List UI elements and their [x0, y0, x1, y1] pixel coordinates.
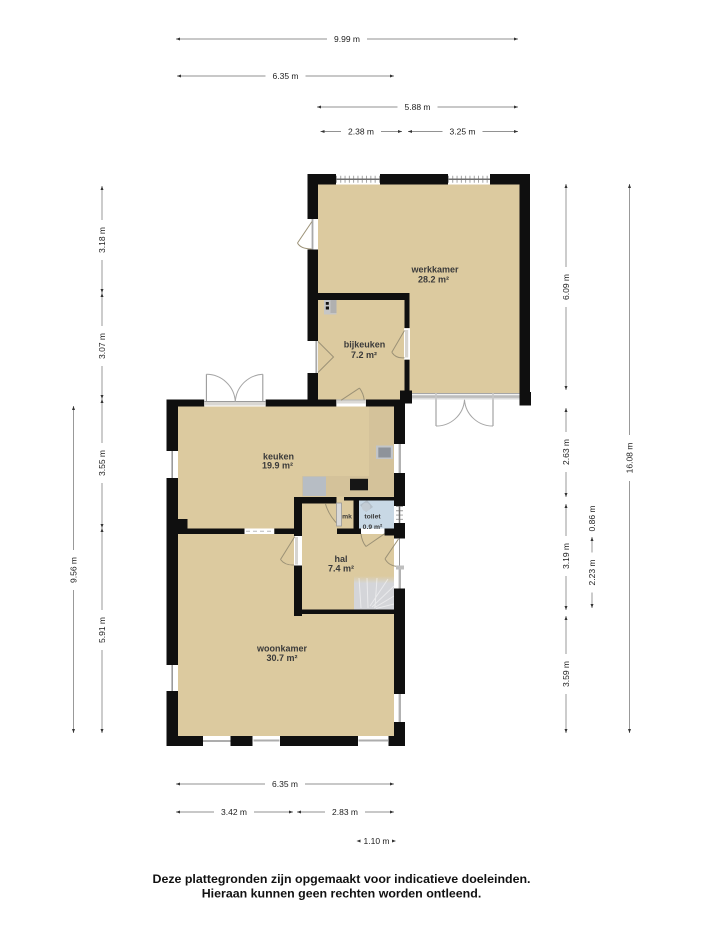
- svg-text:werkkamer: werkkamer: [410, 265, 459, 275]
- svg-text:mk: mk: [342, 514, 352, 521]
- svg-text:1.10 m: 1.10 m: [364, 836, 390, 846]
- svg-text:bijkeuken: bijkeuken: [344, 340, 386, 350]
- svg-text:2.63 m: 2.63 m: [561, 439, 571, 465]
- svg-text:7.2 m²: 7.2 m²: [351, 350, 377, 360]
- svg-text:Hieraan kunnen geen rechten wo: Hieraan kunnen geen rechten worden ontle…: [202, 887, 482, 901]
- svg-text:hal: hal: [334, 554, 347, 564]
- svg-text:2.23 m: 2.23 m: [587, 560, 597, 586]
- svg-text:toilet: toilet: [364, 514, 381, 521]
- svg-text:7.4 m²: 7.4 m²: [328, 564, 354, 574]
- svg-text:2.83 m: 2.83 m: [332, 807, 358, 817]
- svg-text:28.2 m²: 28.2 m²: [418, 275, 449, 285]
- svg-text:3.07 m: 3.07 m: [97, 333, 107, 359]
- svg-text:3.55 m: 3.55 m: [97, 450, 107, 476]
- svg-text:5.88 m: 5.88 m: [405, 102, 431, 112]
- svg-text:3.59 m: 3.59 m: [561, 661, 571, 687]
- svg-text:0.9 m²: 0.9 m²: [363, 524, 383, 531]
- svg-text:9.99 m: 9.99 m: [334, 34, 360, 44]
- svg-text:3.18 m: 3.18 m: [97, 227, 107, 253]
- svg-text:2.38 m: 2.38 m: [348, 127, 374, 137]
- svg-text:3.42 m: 3.42 m: [221, 807, 247, 817]
- svg-text:5.91 m: 5.91 m: [97, 617, 107, 643]
- svg-text:16.08 m: 16.08 m: [625, 443, 635, 474]
- svg-text:3.25 m: 3.25 m: [450, 127, 476, 137]
- svg-text:Deze plattegronden zijn opgema: Deze plattegronden zijn opgemaakt voor i…: [153, 872, 531, 886]
- svg-text:30.7 m²: 30.7 m²: [266, 653, 297, 663]
- svg-text:woonkamer: woonkamer: [256, 644, 308, 654]
- svg-text:6.35 m: 6.35 m: [272, 779, 298, 789]
- svg-text:6.35 m: 6.35 m: [273, 71, 299, 81]
- svg-text:9.56 m: 9.56 m: [69, 557, 79, 583]
- svg-text:0.86 m: 0.86 m: [587, 506, 597, 532]
- svg-text:3.19 m: 3.19 m: [561, 543, 571, 569]
- svg-text:6.09 m: 6.09 m: [561, 274, 571, 300]
- svg-text:19.9 m²: 19.9 m²: [262, 461, 293, 471]
